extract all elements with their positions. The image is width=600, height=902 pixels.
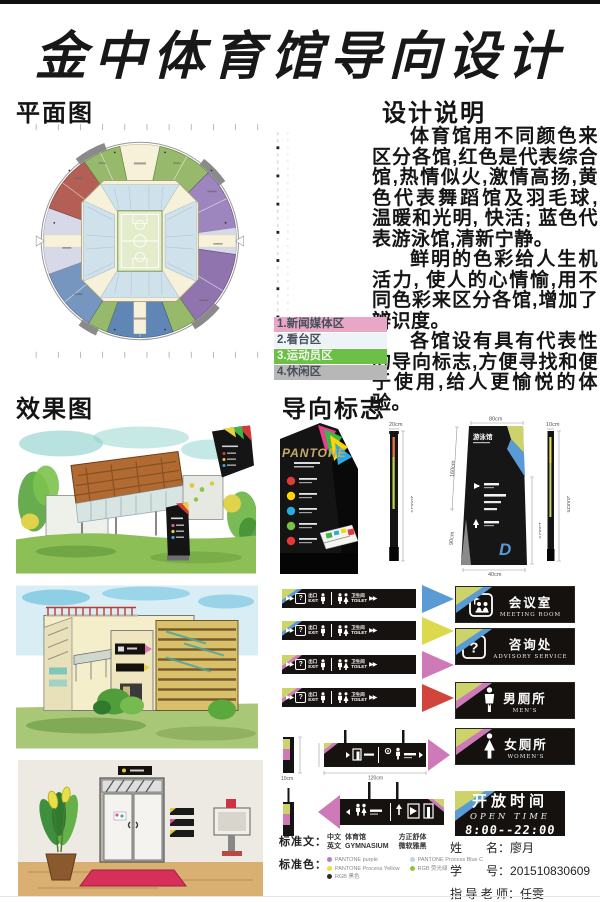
- direction-triangle: [422, 617, 454, 645]
- notes-paragraph: 各馆设有具有代表性的导向标志,方便寻找和便于使用,给人更愉悦的体验。: [372, 332, 598, 414]
- toilet-icon: [337, 692, 349, 704]
- opening-hours: 8:00--22:00: [464, 823, 556, 836]
- standards-block: 标准文： 中文体育馆 英文GYMNASIUM 方正舒体 微软雅黑 标准色： PA…: [279, 833, 451, 887]
- rendering-exterior-1: [16, 423, 256, 574]
- color-swatch: [327, 866, 332, 871]
- svg-text:80cm: 80cm: [489, 417, 503, 423]
- womens-icon: [482, 733, 497, 760]
- svg-text:20cm: 20cm: [389, 422, 403, 428]
- teacher-name: 任雯: [520, 887, 544, 901]
- arrows-icon: ▶▶: [286, 595, 293, 602]
- wall-mini-signs: [170, 808, 194, 837]
- arrows-icon: ▶▶: [369, 627, 376, 634]
- arrows-icon: ▶▶: [369, 694, 376, 701]
- direction-triangle: [422, 651, 454, 679]
- color-swatch: [410, 857, 415, 862]
- credits-block: 姓 名：廖月 学 号：201510830609 指 导 老 师：任雯: [450, 839, 598, 902]
- direction-triangle: [422, 684, 454, 712]
- signage-heading: 导向标志: [282, 389, 386, 424]
- svg-text:10cm: 10cm: [546, 422, 560, 428]
- svg-text:90cm: 90cm: [449, 531, 456, 545]
- toilet-icon: [337, 625, 349, 637]
- question-icon: ?: [295, 659, 306, 670]
- legend-item-media: 1.新闻媒体区: [274, 317, 387, 332]
- wall-sign-row-2: ▶▶ ? 出口EXIT 卫生间TOILET ▶▶: [282, 617, 458, 645]
- person-icon: [320, 659, 326, 671]
- toilet-icon: [337, 659, 349, 671]
- wall-sign-row-3: ▶▶ ? 出口EXIT 卫生间TOILET ▶▶: [282, 651, 458, 679]
- mens-icon: [483, 687, 496, 714]
- color-swatch: [327, 857, 332, 862]
- student-id-row: 学 号：201510830609: [450, 862, 598, 879]
- wall-sign: ▶▶ ? 出口EXIT 卫生间TOILET ▶▶: [282, 589, 416, 608]
- arrows-icon: ▶▶: [286, 661, 293, 668]
- hanging-sign-1: 120cm 50cm: [316, 730, 452, 785]
- pantone-brand-text: PANTONE: [282, 446, 347, 460]
- legend-item-stands: 2.看台区: [274, 333, 387, 348]
- svg-text:120cm: 120cm: [368, 776, 383, 781]
- door-unit: [100, 778, 164, 862]
- person-icon: [320, 692, 326, 704]
- arrows-icon: ▶▶: [286, 694, 293, 701]
- rendering-interior: [18, 760, 263, 896]
- room-sign-mens: 男厕所MEN'S: [455, 682, 575, 719]
- bottom-rule: [0, 896, 600, 897]
- svg-text:200cm: 200cm: [565, 496, 570, 513]
- student-id: 201510830609: [510, 864, 590, 878]
- inset-panel: [212, 426, 254, 478]
- top-rule: [0, 0, 600, 4]
- toilet-icon: [337, 593, 349, 605]
- notes-paragraph: 体育馆用不同颜色来区分各馆,红色是代表综合馆,热情似火,激情高扬,黄色代表舞蹈馆…: [372, 127, 598, 250]
- rendering-exterior-2: [16, 585, 258, 749]
- hanging-side-view-1: 10cm: [278, 735, 314, 786]
- wall-sign-row-1: ▶▶ ? 出口EXIT 卫生间TOILET ▶▶: [282, 585, 458, 613]
- floor-plan-svg: [14, 122, 294, 362]
- direction-triangle: [422, 585, 454, 613]
- svg-text:200cm: 200cm: [409, 496, 413, 513]
- design-notes-heading: 设计说明: [382, 93, 486, 128]
- totem-in-render: [166, 503, 190, 561]
- standard-text-label: 标准文：: [279, 833, 327, 849]
- divider: [331, 592, 332, 605]
- question-icon: ?: [295, 593, 306, 604]
- arrows-icon: ▶▶: [286, 627, 293, 634]
- basketball-court: [118, 211, 162, 271]
- student-name: 廖月: [510, 841, 534, 855]
- notes-paragraph: 鲜明的色彩给人生机活力, 使人的心情愉,用不同色彩来区分各馆,增加了辨识度。: [372, 250, 598, 332]
- legend-item-athletes: 3.运动员区: [274, 349, 387, 364]
- teacher-row: 指 导 老 师：任雯: [450, 885, 598, 902]
- color-swatch: [410, 866, 415, 871]
- standard-color-label: 标准色：: [279, 856, 327, 872]
- svg-text:160cm: 160cm: [450, 460, 457, 477]
- poster: 金中体育馆导向设计 平面图 设计说明 效果图 导向标志 体育馆用不同颜色来区分各…: [0, 0, 600, 902]
- poster-title: 金中体育馆导向设计: [0, 14, 600, 89]
- totem-logo: D: [499, 540, 511, 559]
- person-icon: [320, 625, 326, 637]
- totem-title: 游泳馆: [473, 432, 493, 441]
- svg-text:10cm: 10cm: [281, 776, 293, 781]
- legend-item-leisure: 4.休闲区: [274, 365, 387, 380]
- person-icon: [320, 593, 326, 605]
- arrows-icon: ▶▶: [369, 661, 376, 668]
- floor-plan-legend: 1.新闻媒体区 2.看台区 3.运动员区 4.休闲区: [274, 317, 387, 381]
- open-time-sign: 开放时间 OPEN TIME 8:00--22:00: [455, 791, 565, 836]
- arrows-icon: ▶▶: [369, 595, 376, 602]
- pantone-totem-sign: PANTONE: [280, 423, 358, 579]
- design-notes: 体育馆用不同颜色来区分各馆,红色是代表综合馆,热情似火,激情高扬,黄色代表舞蹈馆…: [372, 127, 598, 414]
- question-icon: ?: [295, 625, 306, 636]
- wall-sign-row-4: ▶▶ ? 出口EXIT 卫生间TOILET ▶▶: [282, 684, 458, 712]
- renderings-heading: 效果图: [16, 389, 94, 424]
- room-sign-information: ? 咨询处ADVISORY SERVICE: [455, 628, 575, 665]
- floor-plan-figure: [14, 122, 294, 362]
- room-sign-meeting: 会议室MEETING ROOM: [455, 586, 575, 623]
- room-sign-womens: 女厕所WOMEN'S: [455, 728, 575, 765]
- question-icon: ?: [295, 692, 306, 703]
- totem-side-view-2: 10cm 200cm: [540, 419, 570, 580]
- swimming-totem-sign: 80cm 游泳馆 D 160cm 90cm 130cm: [447, 415, 541, 582]
- color-swatch: [327, 874, 332, 879]
- svg-text:40cm: 40cm: [488, 572, 502, 577]
- student-name-row: 姓 名：廖月: [450, 839, 598, 856]
- totem-side-view-1: 20cm 200cm: [383, 419, 413, 580]
